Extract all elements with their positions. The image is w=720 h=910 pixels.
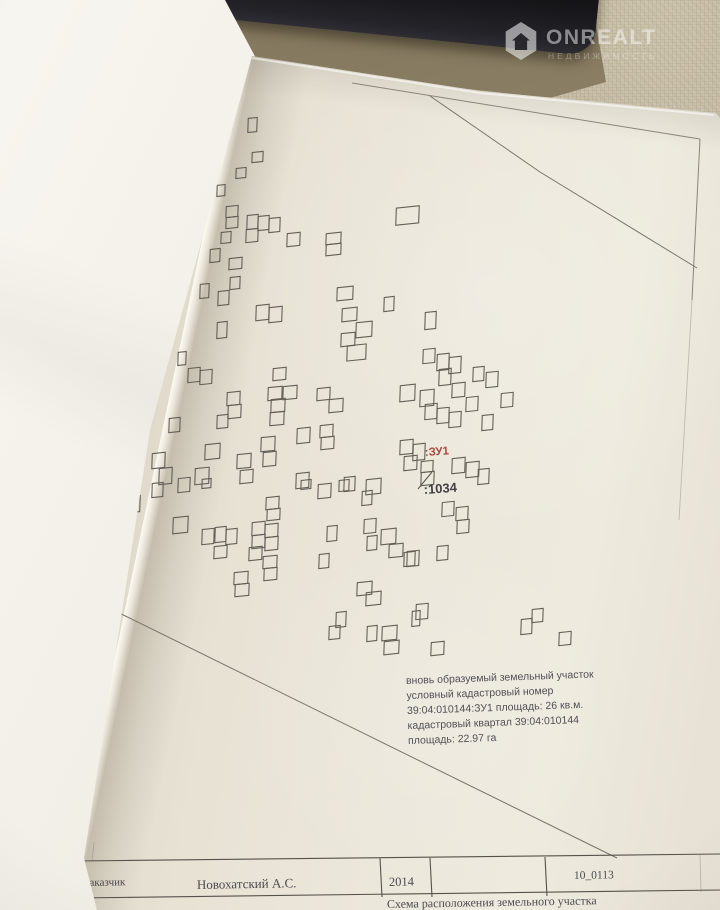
plot-square [416,603,428,619]
quarter-boundary-bottom [101,604,617,858]
plot-square [341,332,355,347]
plot-square [247,214,258,229]
plot-square [456,506,468,520]
photo-scene: :ЗУ1 :1034 вновь образуемый земельный уч… [0,0,720,910]
plot-square [337,286,353,301]
plot-square [265,536,278,550]
plot-square [205,443,220,460]
plot-square [367,625,377,641]
plot-square [367,535,377,550]
plot-square [319,553,329,568]
plot-square [327,525,337,541]
plot-square [457,519,469,533]
plot-square [317,387,330,400]
plot-square [396,206,419,226]
plot-square [200,283,209,298]
plot-square [252,151,263,162]
table-cell-doc-title: Схема расположения земельного участка [387,893,598,910]
plot-square [466,461,479,477]
plot-square [473,366,484,381]
plot-square [356,321,372,338]
plot-square [342,307,357,322]
plot-square [318,483,331,498]
plot-square [384,640,399,655]
plot-square [230,276,240,289]
plot-square [364,518,376,533]
table-col-line-2 [430,858,432,897]
plot-square [269,217,280,232]
plot-square [269,306,282,322]
plot-square [237,453,251,469]
plot-square [229,257,242,269]
plot-square [404,455,417,470]
plot-square [437,545,448,560]
plot-square [321,436,334,449]
plot-square [437,353,449,370]
plot-square [357,581,372,596]
plot-square [326,243,341,256]
plot-square [228,404,241,418]
frame-right-line [692,139,700,300]
plot-square [218,290,229,305]
table-col-line-4 [700,855,701,892]
plot-square [297,427,310,443]
plot-square [236,167,246,178]
plot-square [248,117,257,132]
plot-square [240,469,253,483]
plot-square [270,411,284,426]
plot-square [389,543,403,558]
quarter-boundary-top [430,96,697,268]
plot-square [501,392,513,407]
plot-square [532,608,543,622]
plot-square [400,439,413,454]
table-cell-sheet-code: 10_0113 [574,869,614,882]
plot-label-zu1: :ЗУ1 [424,445,450,459]
plot-square [226,205,238,217]
plot-square [256,304,269,320]
plot-square [227,391,240,405]
plot-square [423,348,435,363]
plot-square [226,528,237,544]
frame-left-margin-line [92,842,94,861]
plot-square [202,528,214,544]
title-block-table: Заказчик Новохатский А.С. 2014 10_0113 С… [76,854,720,910]
plot-square [384,296,394,311]
plot-square [263,451,276,466]
plot-label-1034: :1034 [423,480,458,497]
plot-square [329,398,343,413]
plot-square [264,567,277,580]
plot-square [258,215,269,230]
plot-square [283,385,297,400]
plot-square [347,344,366,361]
plot-square [366,478,381,495]
plot-square [178,352,186,366]
plot-square [559,631,571,645]
plot-square [366,591,381,606]
table-cell-customer-name: Новохатский А.С. [197,875,297,892]
plot-square [425,311,437,329]
info-block: вновь образуемый земельный участок услов… [406,668,597,747]
plot-square [178,477,190,492]
plot-square [235,583,249,597]
plot-square [266,496,279,509]
info-line-2: условный кадастровый номер [406,685,553,702]
plot-square [217,414,228,428]
plot-square [188,367,200,382]
info-line-5: площадь: 22.97 га [408,732,497,747]
info-line-4: кадастровый квартал 39:04:010144 [407,714,579,732]
plot-square [320,424,333,437]
plot-square [478,468,489,484]
plot-square [287,232,300,246]
plot-square [382,625,397,641]
plot-square [413,443,425,460]
plot-square [214,545,227,558]
plot-square [169,417,180,432]
plot-square [381,528,396,545]
plot-square [200,369,212,384]
plot-square [173,516,188,534]
table-cell-year: 2014 [389,875,415,889]
plot-square [521,618,532,634]
plot-square [437,407,449,423]
plot-square [261,436,275,452]
plot-square [217,321,228,338]
frame-right-line-faint [679,300,692,520]
plot-square [252,521,265,535]
plot-square [234,571,248,585]
table-col-line-3 [545,857,547,896]
plot-square [273,367,286,380]
plot-square [431,641,444,655]
table-col-line-1 [380,858,382,897]
table-top-line [76,854,720,861]
plot-square [362,490,372,505]
info-line-1: вновь образуемый земельный участок [406,668,594,687]
plot-square [442,501,454,516]
plot-square [486,371,498,387]
plot-square [263,555,277,569]
plot-square [210,248,220,262]
plot-square [449,411,461,427]
plot-square [267,508,280,520]
plot-square [221,231,231,243]
plot-square [217,185,225,197]
plot-square [215,526,226,542]
plot-square [152,452,165,468]
plot-square [466,396,478,411]
plot-square [482,414,493,430]
plot-square [452,382,465,397]
plot-square [246,228,258,242]
plot-square [226,216,238,228]
plot-square [421,460,433,472]
plot-square [400,384,415,402]
plot-square [404,551,415,566]
plot-square [265,523,278,537]
plot-square [452,457,465,473]
plot-square [407,550,419,566]
